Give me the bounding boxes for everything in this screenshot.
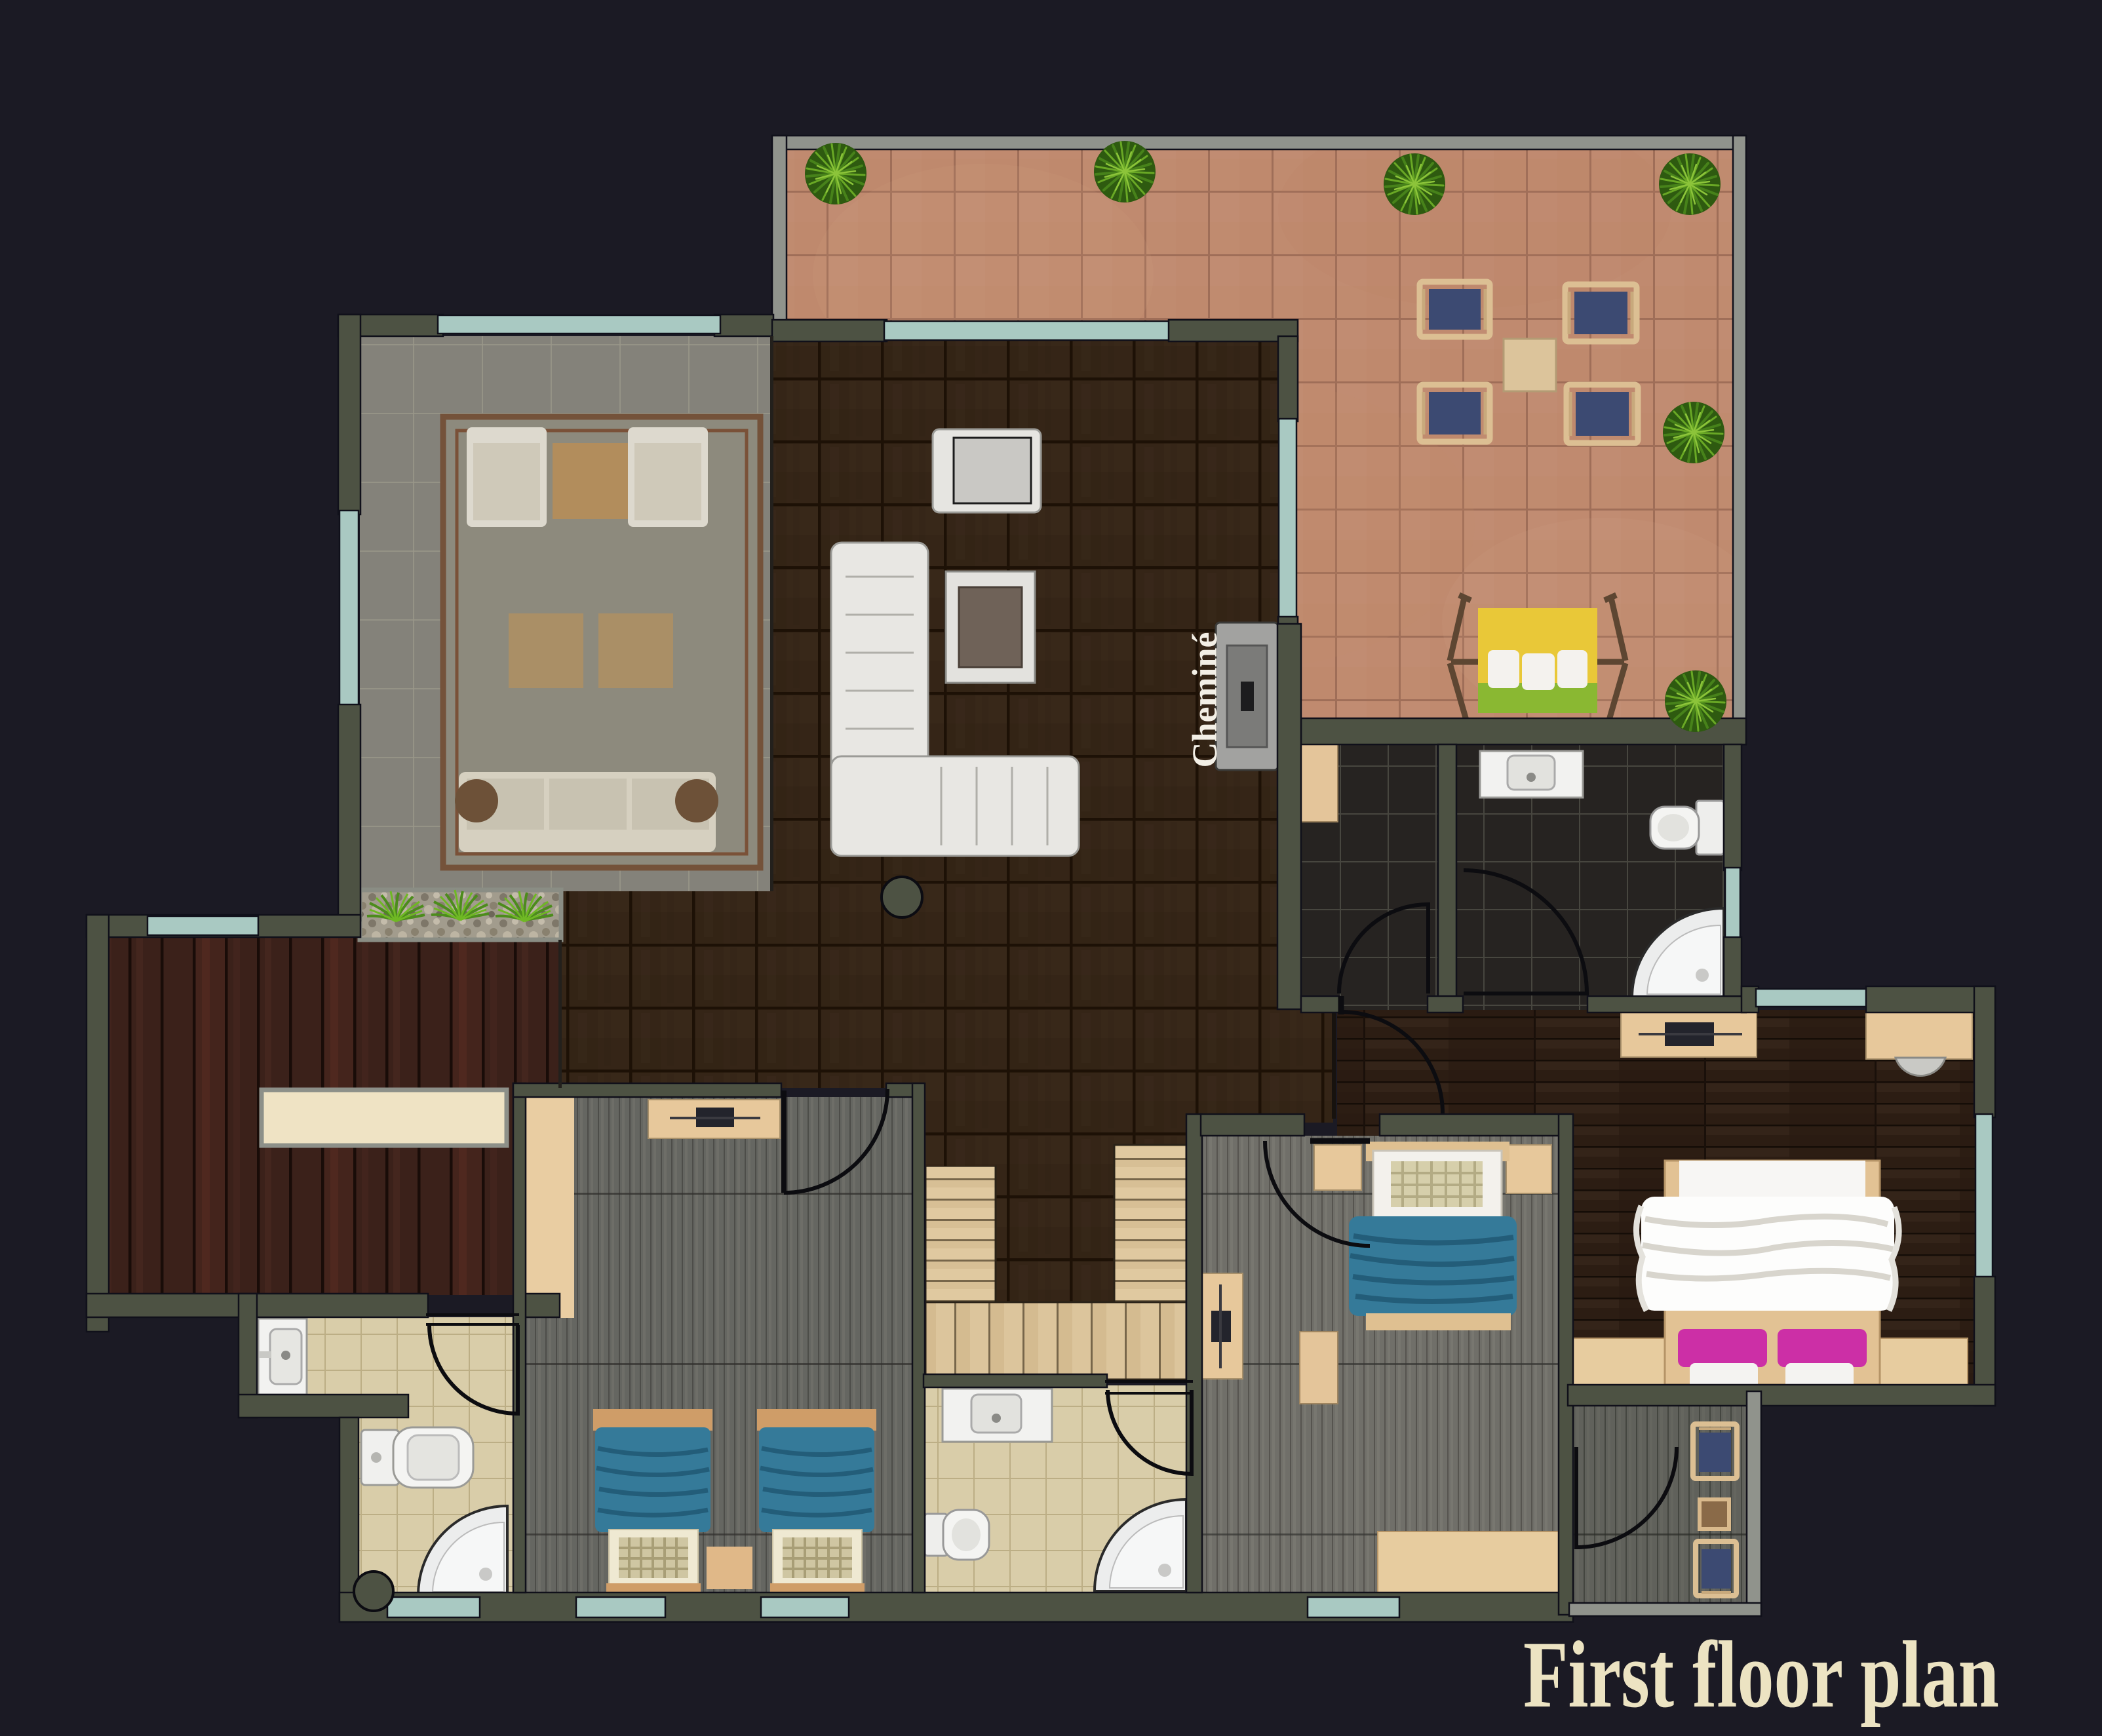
- svg-text:Cheminé: Cheminé: [1185, 632, 1224, 768]
- svg-text:First floor plan: First floor plan: [1523, 1622, 1999, 1727]
